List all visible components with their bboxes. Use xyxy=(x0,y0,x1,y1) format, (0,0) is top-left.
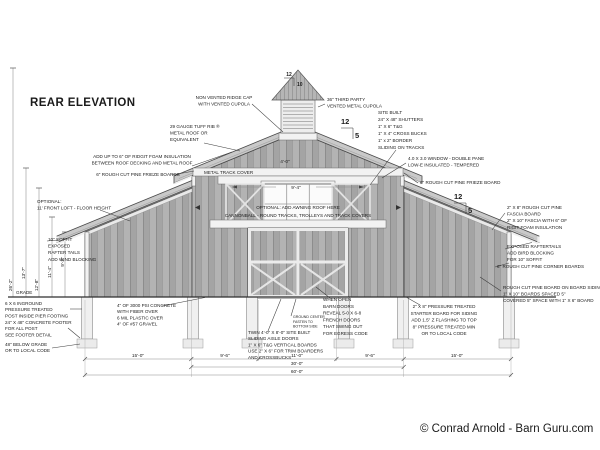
note-fascia: 2" X 8" ROUGH CUT PINEFASCIA BOARD2" X 1… xyxy=(507,205,567,230)
dim-loft-small: 4'-0" xyxy=(280,159,290,165)
twin-sliding-doors xyxy=(248,228,348,298)
loft-shutter-left xyxy=(226,184,264,224)
post xyxy=(504,297,515,339)
dim-overall-width: 60'-0" xyxy=(291,369,304,375)
dim-height-roof-break: 12'-8" xyxy=(34,279,40,292)
note-rafter-tails-right: EXPOSED RAFTERTAILSADD BIRD BLOCKINGFOR … xyxy=(507,244,561,262)
dim-height-loft: 11'-4" xyxy=(47,266,53,278)
note-post: 6 X 6 INGROUNDPRESSURE TREATEDPOST INSID… xyxy=(5,301,69,318)
note-frieze-left: 6" ROUGH CUT PINE FRIEZE BOARDS xyxy=(96,172,179,177)
dim-height-overall: 26'-2" xyxy=(8,279,14,292)
cupola-pitch-run: 10 xyxy=(297,82,303,88)
credit-line: © Conrad Arnold - Barn Guru.com xyxy=(420,423,593,435)
dim-height-monitor-eave: 13'-7" xyxy=(21,267,27,280)
dim-bay-4: 9'-6" xyxy=(365,353,375,359)
footer xyxy=(334,339,354,348)
monitor-right-corner-board xyxy=(401,176,405,186)
footer xyxy=(499,339,519,348)
cupola xyxy=(272,70,324,140)
note-ridge-cap: NON VENTED RIDGE CAPWITH VENTED CUPOLA xyxy=(196,95,253,106)
note-cupola: 36" THIRD PARTYVENTED METAL CUPOLA xyxy=(327,97,383,108)
monitor-pitch-rise: 12 xyxy=(341,117,349,126)
note-slab: 4" OF 3000 PSI CONCRETEWITH FIBER OVER6 … xyxy=(117,303,176,327)
note-metal-roof: 29 GAUGE TUFF RIB ®METAL ROOF OREQUIVALE… xyxy=(170,123,220,142)
note-foam-insulation: ADD UP TO 6" OF RIDGIT FOAM INSULATIONBE… xyxy=(92,154,193,165)
post xyxy=(188,297,199,339)
dim-bay-1: 15'-0" xyxy=(132,353,145,359)
note-siding: ROUGH CUT PINE BOARD ON BOARD SIDING1" X… xyxy=(503,285,600,303)
note-optional-loft: OPTIONAL:11' FRONT LOFT - FLOOR HEIGHT xyxy=(37,199,111,210)
dim-bay-3: 11'-0" xyxy=(291,353,303,359)
elevation-drawing-sheet: REAR ELEVATION 26'-2" 13'-7" 12'-8" 11'-… xyxy=(0,0,600,450)
page-title: REAR ELEVATION xyxy=(30,97,135,109)
note-awning: OPTIONAL: ADD AWNING ROOF HERE xyxy=(256,205,340,210)
note-starter-board: 2" X 8" PRESSURE TREATEDSTARTER BOARD FO… xyxy=(411,304,478,336)
note-frieze-right: 6" ROUGH CUT PINE FRIEZE BOARD xyxy=(420,180,501,185)
footer xyxy=(183,339,203,348)
dim-loft-width: 9'-4" xyxy=(291,185,301,191)
note-footer: 24" X 48" CONCRETE FOOTERFOR ALL POSTSEE… xyxy=(5,320,72,337)
note-grade: GRADE xyxy=(16,290,32,295)
note-cannonball: CANNONBALL - ROUND TRACKS, TROLLEYS AND … xyxy=(225,213,371,218)
barn-rear-elevation-svg: REAR ELEVATION 26'-2" 13'-7" 12'-8" 11'-… xyxy=(0,0,600,450)
dim-bay-2: 9'-6" xyxy=(220,353,230,359)
note-window: 4.0 X 3.0 WINDOW - DOUBLE PANELOW-E INSU… xyxy=(408,156,484,168)
door-track-cover xyxy=(210,220,386,228)
note-corner-boards: 6" ROUGH CUT PINE CORNER BOARDS xyxy=(497,264,584,269)
note-below-grade: 48" BELOW GRADEOR TO LOCAL CODE xyxy=(5,342,50,353)
note-center-fastening: GROUND CENTERFASTEN TOBOTTOM SIDE xyxy=(293,315,325,329)
monitor-pitch-run: 5 xyxy=(355,131,359,140)
footer xyxy=(77,339,97,348)
dim-bay-5: 15'-0" xyxy=(451,353,464,359)
post xyxy=(398,297,409,339)
loft-shutter-right xyxy=(332,184,370,224)
cupola-body xyxy=(281,100,315,133)
left-corner-board xyxy=(85,232,89,297)
shed-pitch-run: 5 xyxy=(468,206,472,215)
dim-monitor-width: 30'-0" xyxy=(291,361,304,367)
note-french-doors: WHEN OPENBARN DOORSREVEAL 5-0 X 6-8FRENC… xyxy=(323,297,368,336)
cupola-pitch-rise: 12 xyxy=(286,72,292,78)
note-track-cover: METAL TRACK COVER xyxy=(204,170,254,175)
post xyxy=(82,297,93,339)
footer xyxy=(393,339,413,348)
note-shutters: SITE BUILT24" X 48" SHUTTERS1" X 6" T&G1… xyxy=(378,110,427,150)
cupola-base xyxy=(279,133,317,140)
note-aisle-doors: TWIN 4'-0" X 8'-0" SITE BUILTSLIDING AIS… xyxy=(248,330,323,360)
shed-pitch-rise: 12 xyxy=(454,192,462,201)
monitor-left-corner-board xyxy=(192,176,196,186)
